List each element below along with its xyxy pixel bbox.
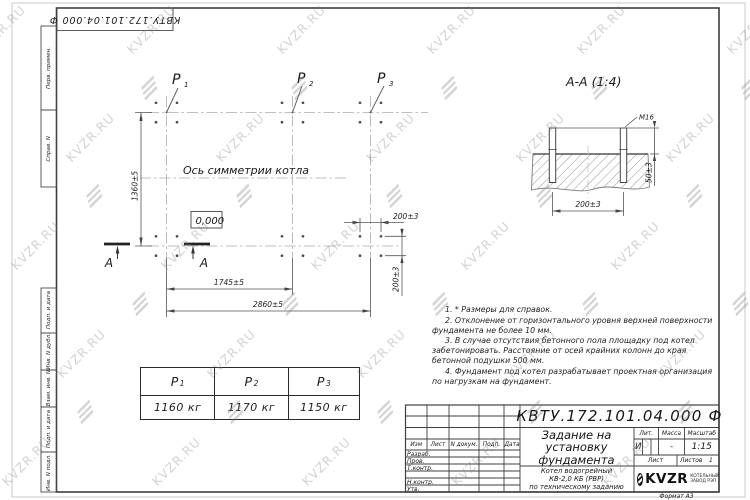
section-letter-a1: А bbox=[104, 256, 113, 270]
dim-1745: 1745±5 bbox=[214, 278, 244, 287]
margin-box-podp-data-2: Подп. и дата bbox=[41, 407, 57, 452]
dim-2860: 2860±5 bbox=[253, 300, 283, 309]
thread-callout-m16: М16 bbox=[639, 114, 654, 122]
company-logo-cell: KVZR КОТЕЛЬНЫЙ ЗАВОД РЭП bbox=[634, 466, 719, 492]
row-tkontr: Т.контр. bbox=[407, 465, 449, 472]
title-block-doc-number: КВТУ.172.101.04.000 Ф bbox=[520, 405, 719, 428]
rev-col-ndocum: N докум. bbox=[449, 439, 479, 450]
rev-col-podp: Подп. bbox=[479, 439, 504, 450]
margin-box-inv-podl: Инв. N подл. bbox=[41, 452, 57, 492]
load-value-p1: 1160 кг bbox=[141, 395, 214, 420]
note-1: 1. * Размеры для справок. bbox=[432, 305, 716, 315]
section-letter-a2: А bbox=[199, 256, 208, 270]
load-point-p2-sub: 2 bbox=[309, 80, 314, 88]
margin-box-perv-primen: Перв. примен. bbox=[41, 26, 57, 110]
margin-box-inv-dubl: Инв. N дубл. bbox=[41, 333, 57, 370]
load-point-p1-sub: 1 bbox=[184, 81, 188, 89]
mass-value: - bbox=[659, 439, 685, 455]
corner-doc-number: КВТУ.172.101.04.000 Ф bbox=[49, 14, 180, 25]
sheets-label: Листов bbox=[680, 457, 704, 464]
rev-col-list: Лист bbox=[427, 439, 449, 450]
row-utv: Утв. bbox=[407, 486, 449, 493]
load-table-header-p3: P3 bbox=[288, 368, 359, 395]
plan-leaders bbox=[167, 86, 385, 113]
load-point-p1-label: P bbox=[172, 72, 181, 88]
anchor-bolt-groups bbox=[155, 101, 383, 257]
dim-section-50: 50±3 bbox=[645, 162, 654, 183]
plan-dimensions bbox=[135, 113, 406, 318]
drawing-sheet: P 1 P 2 P 3 Ось симметрии котла 0,000 13… bbox=[0, 0, 750, 500]
anchor-bolt bbox=[620, 128, 626, 183]
lit-value: И bbox=[634, 439, 643, 455]
boiler-axis-label: Ось симметрии котла bbox=[183, 164, 309, 177]
kvzr-logo-text: KVZR bbox=[645, 471, 688, 487]
company-name: КОТЕЛЬНЫЙ ЗАВОД РЭП bbox=[690, 474, 719, 484]
load-table: P1 P2 P3 1160 кг 1170 кг 1150 кг bbox=[140, 367, 360, 420]
load-point-p2-label: P bbox=[297, 71, 306, 87]
load-point-p3-label: P bbox=[377, 71, 386, 87]
note-2: 2. Отклонение от горизонтального уровня … bbox=[432, 316, 716, 336]
load-value-p3: 1150 кг bbox=[288, 395, 359, 420]
sheet-label: Лист bbox=[634, 455, 677, 466]
row-nkontr: Н.контр. bbox=[407, 479, 449, 486]
margin-box-podp-data-1: Подп. и дата bbox=[41, 288, 57, 333]
row-prov: Пров. bbox=[407, 458, 449, 465]
anchor-bolt bbox=[549, 128, 555, 183]
elevation-mark-value: 0,000 bbox=[196, 216, 225, 227]
title-block-task-name: Задание на установку фундамента bbox=[520, 429, 633, 466]
dim-1360: 1360±5 bbox=[131, 171, 140, 201]
lit-header: Лит. bbox=[634, 428, 659, 439]
load-value-p2: 1170 кг bbox=[214, 395, 287, 420]
dim-200-vertical: 200±3 bbox=[392, 266, 401, 292]
margin-box-sprav-n: Справ. N bbox=[41, 110, 57, 187]
rev-col-data: Дата bbox=[504, 439, 520, 450]
dim-section-200: 200±3 bbox=[575, 200, 601, 209]
margin-box-vzam-inv: Взам. инв. N bbox=[41, 370, 57, 407]
technical-notes: 1. * Размеры для справок. 2. Отклонение … bbox=[432, 305, 716, 387]
row-razrab: Разраб. bbox=[407, 451, 449, 458]
plan-dimension-arrows bbox=[139, 113, 403, 313]
section-title: А-А (1:4) bbox=[565, 74, 621, 89]
load-table-header-p1: P1 bbox=[141, 368, 214, 395]
load-point-p3-sub: 3 bbox=[389, 80, 393, 88]
title-block-product-name: Котел водогрейный КВ-2,0 КБ (РВР) по тех… bbox=[520, 467, 633, 492]
dim-200-horizontal: 200±3 bbox=[393, 212, 419, 221]
kvzr-emblem-icon bbox=[637, 473, 643, 486]
note-3: 3. В случае отсутствия бетонного пола пл… bbox=[432, 336, 716, 366]
scale-header: Масштаб bbox=[685, 428, 720, 439]
mass-header: Масса bbox=[659, 428, 685, 439]
plan-centerlines bbox=[140, 96, 428, 258]
format-label: Формат А3 bbox=[634, 493, 719, 500]
corner-doc-number-stamp: КВТУ.172.101.04.000 Ф bbox=[57, 8, 173, 31]
load-table-header-p2: P2 bbox=[214, 368, 287, 395]
sheets-value: 1 bbox=[709, 457, 717, 464]
rev-col-izm: Изм bbox=[406, 439, 428, 450]
scale-value: 1:15 bbox=[685, 439, 720, 455]
note-4: 4. Фундамент под котел разрабатывает про… bbox=[432, 367, 716, 387]
